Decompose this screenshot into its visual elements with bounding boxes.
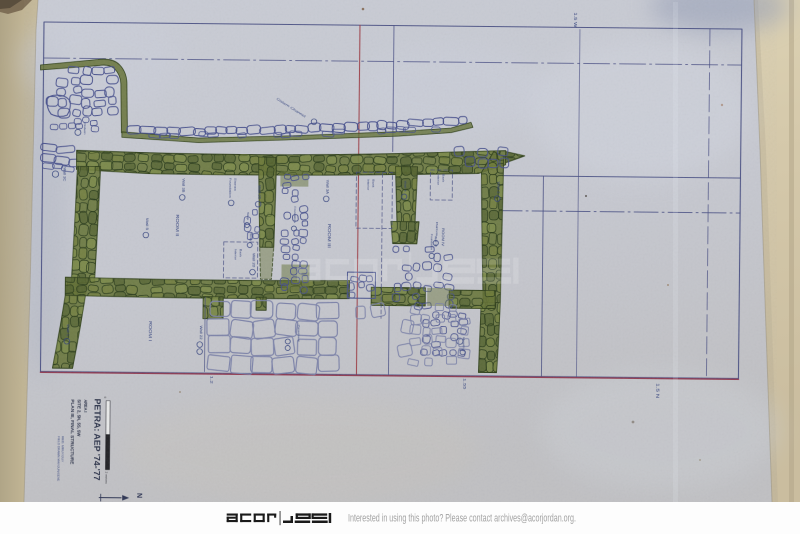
svg-text:Interested in using this photo: Interested in using this photo? Please c… <box>348 513 576 525</box>
